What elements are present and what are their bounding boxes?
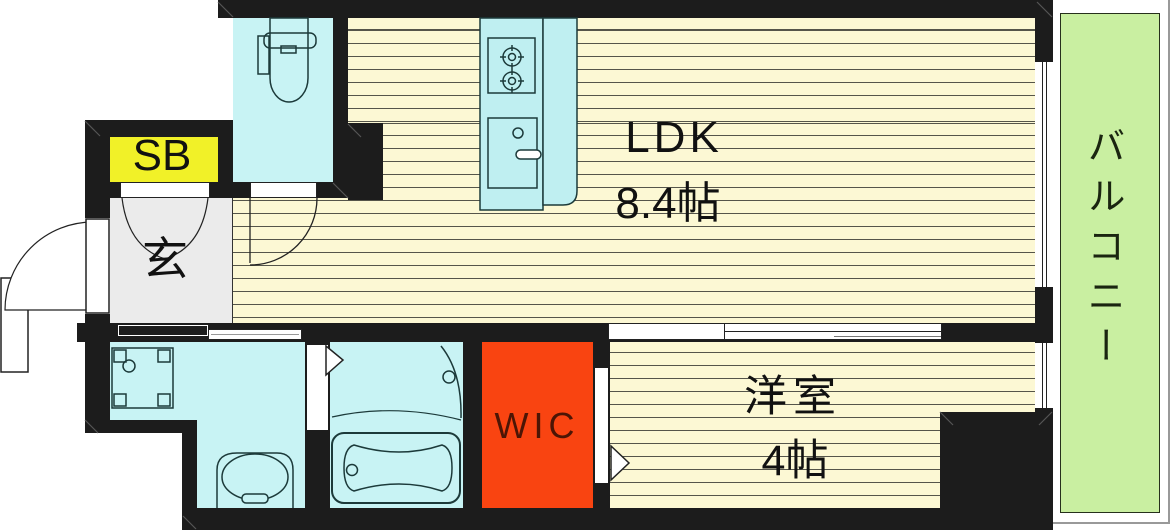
ldk-size-label: 8.4帖 <box>588 182 748 226</box>
ldk-label: LDK <box>594 116 754 160</box>
floor-plan: バルコニー <box>0 0 1175 530</box>
toilet-room <box>233 18 333 182</box>
shoebox-door-opening <box>120 182 210 198</box>
wic-label: WIC <box>477 408 597 444</box>
ldk-floor-upper <box>348 18 1035 123</box>
window-ldk <box>1035 62 1053 287</box>
bathroom <box>330 342 463 508</box>
western-room-label: 洋室 <box>713 376 873 419</box>
window-western-room <box>1035 343 1053 408</box>
wall-step-left <box>182 420 197 530</box>
pillar-bottom-right <box>940 412 1053 530</box>
toilet-door-opening <box>250 182 317 198</box>
entrance-door-opening <box>85 218 110 314</box>
sliding-door-washroom-closed-panel <box>118 325 208 336</box>
western-room-size-label: 4帖 <box>715 440 875 483</box>
entrance-porch <box>1 278 28 372</box>
sliding-door-ldk-western-room <box>608 323 942 340</box>
wall-toilet-jog <box>348 123 383 200</box>
wall-washroom-notch <box>85 420 197 433</box>
balcony-label: バルコニー <box>1083 126 1121 376</box>
wall-bottom <box>182 508 1053 530</box>
washroom-bath-door-opening <box>307 345 328 430</box>
entrance-label: 玄 <box>115 236 215 282</box>
shoe-box-label: SB <box>112 134 212 178</box>
washroom-lower <box>197 433 305 508</box>
sliding-door-washroom-open-panel <box>208 329 302 340</box>
wall-toilet-right <box>333 0 348 198</box>
entrance-door-swing <box>5 222 93 310</box>
